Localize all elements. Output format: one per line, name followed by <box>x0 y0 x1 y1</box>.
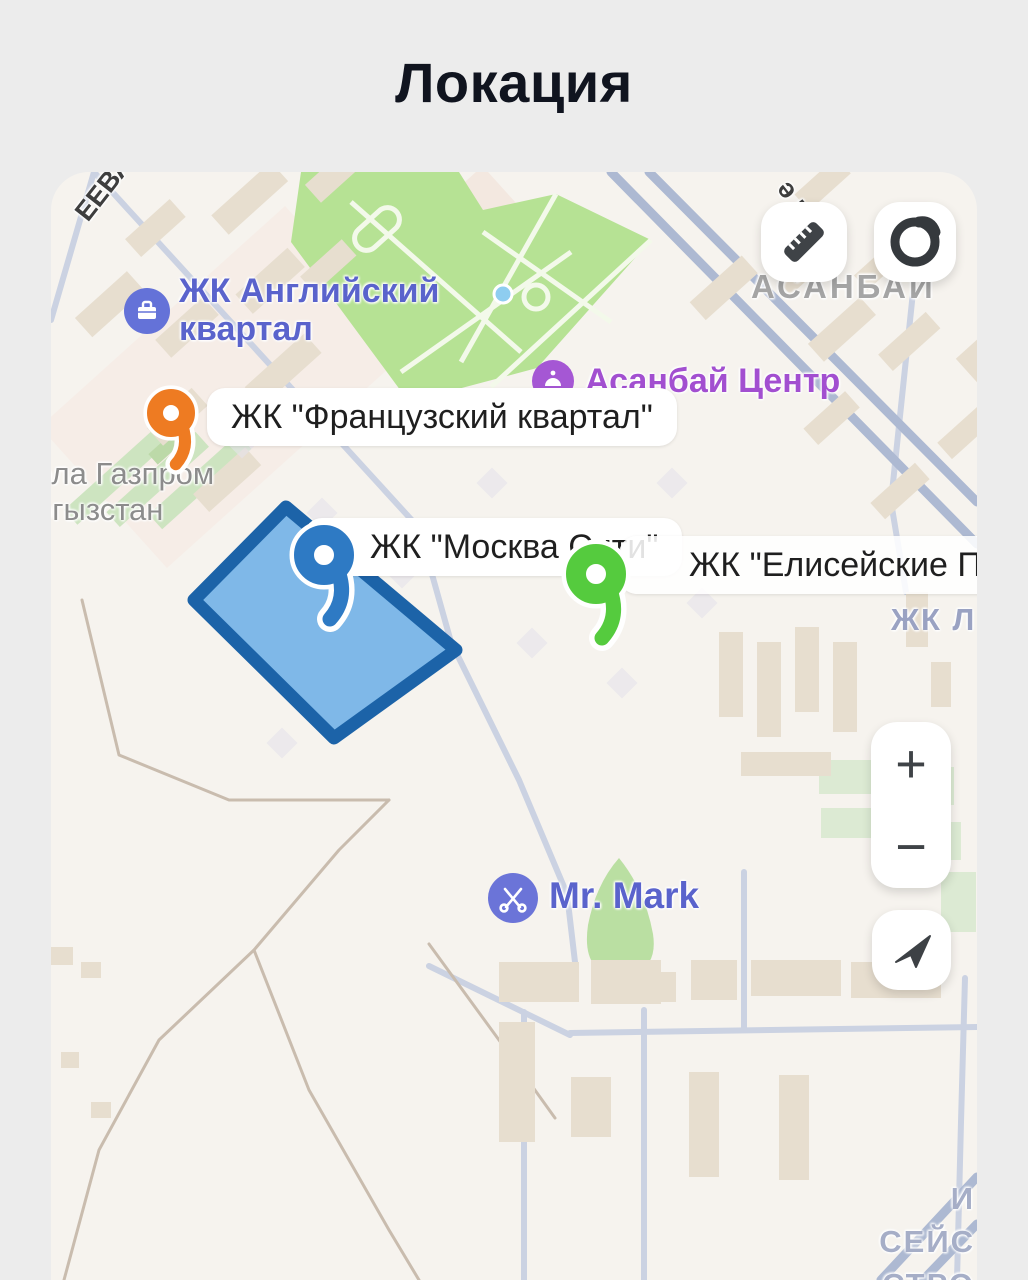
zoom-control[interactable]: + − <box>871 722 951 888</box>
pin-moscow[interactable] <box>284 515 364 635</box>
pin-label-elysian[interactable]: ЖК "Елисейские По <box>619 536 977 594</box>
compass-button[interactable] <box>874 202 956 282</box>
ruler-button[interactable] <box>761 202 847 282</box>
pin-french[interactable] <box>139 381 203 477</box>
poi-label-english-quarter[interactable]: ЖК Английский квартал <box>179 272 439 348</box>
page-title: Локация <box>0 50 1028 115</box>
poi-label-mr-mark[interactable]: Mr. Mark <box>549 877 699 915</box>
zoom-out-button[interactable]: − <box>895 820 927 874</box>
zoom-in-button[interactable]: + <box>895 737 927 791</box>
pin-elysian[interactable] <box>556 534 636 654</box>
scissors-icon[interactable] <box>488 873 538 923</box>
scissors-glyph <box>497 882 529 914</box>
navigation-arrow-icon <box>890 928 934 972</box>
district-label-zhk-l: ЖК Л <box>891 602 976 638</box>
briefcase-icon[interactable] <box>124 288 170 334</box>
pin-label-french[interactable]: ЖК "Французский квартал" <box>207 388 677 446</box>
briefcase-glyph <box>133 297 161 325</box>
compass-ring-icon <box>886 213 944 271</box>
map[interactable]: ЕЕВА ә көч АСАНБАИ ола Газпром ргызстан … <box>51 172 977 1280</box>
district-label-bottom-right: И СЕЙС СТРО <box>879 1177 975 1280</box>
locate-button[interactable] <box>872 910 951 990</box>
ruler-icon <box>776 214 832 270</box>
